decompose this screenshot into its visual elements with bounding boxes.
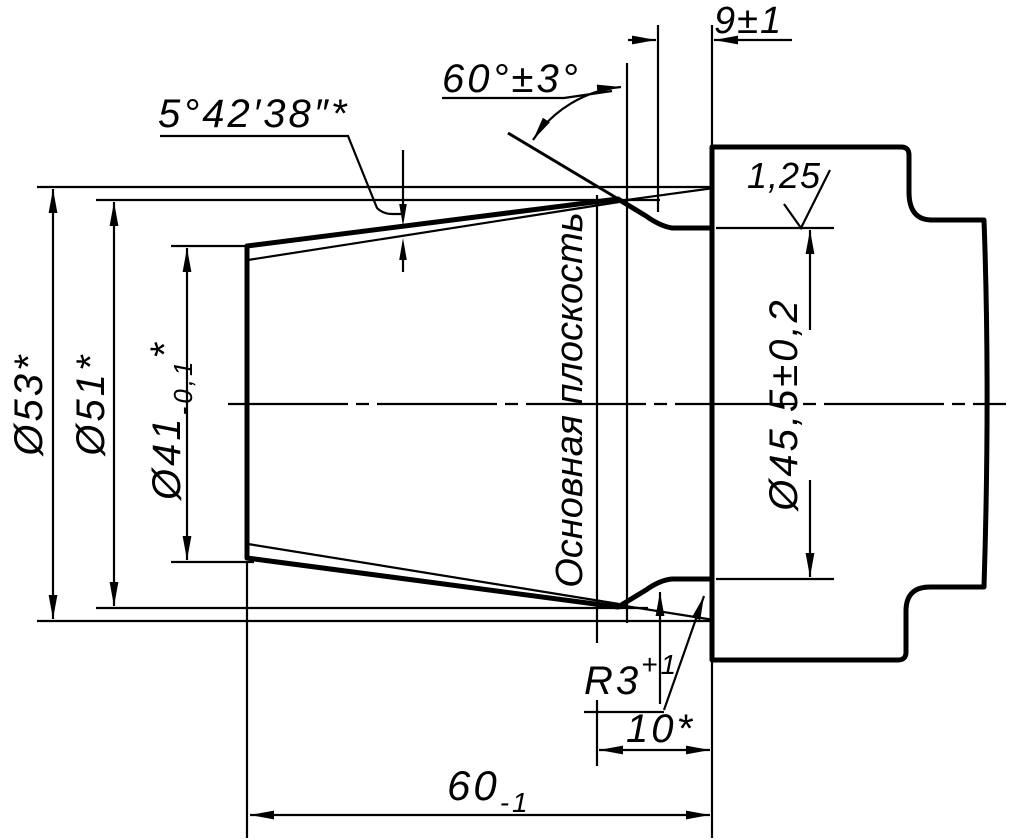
label-dia-53: Ø53* bbox=[7, 352, 51, 457]
label-dia-45-5: Ø45,5±0,2 bbox=[762, 297, 806, 513]
label-taper-half-angle: 5°42′38″* bbox=[158, 92, 349, 136]
label-dia-41-value: Ø41 bbox=[145, 415, 189, 502]
angle-arc-arrow-bottom bbox=[533, 118, 550, 140]
label-basic-plane-distance: 10* bbox=[626, 707, 695, 751]
label-cone-length-value: 60 bbox=[447, 762, 500, 809]
label-basic-plane: Основная плоскость bbox=[549, 212, 591, 588]
chamfer-fillet-bottom bbox=[618, 579, 712, 607]
label-surface-roughness: 1,25 bbox=[747, 155, 821, 196]
label-dia-51: Ø51* bbox=[69, 352, 113, 457]
leader-taper-angle bbox=[160, 136, 402, 214]
label-chamfer-angle: 60°±3° bbox=[442, 57, 581, 101]
label-fillet-radius-tolerance: +1 bbox=[641, 649, 679, 680]
label-dia-41-note: * bbox=[143, 340, 187, 359]
taper-arrow-up bbox=[399, 238, 407, 260]
chamfer-extension-line bbox=[508, 133, 620, 200]
label-flange-width: 9±1 bbox=[714, 0, 783, 42]
label-dia-41-tolerance: -0,1 bbox=[168, 359, 198, 416]
label-fillet-radius-value: R3 bbox=[584, 659, 641, 703]
technical-drawing-canvas: 9±1 60°±3° 5°42′38″* 1,25 Ø53* Ø51* Ø41-… bbox=[0, 0, 1014, 840]
label-fillet-radius: R3+1 bbox=[584, 649, 679, 703]
label-dia-41: Ø41-0,1* bbox=[143, 340, 198, 502]
chamfer-fillet-top bbox=[618, 199, 712, 228]
label-cone-length-tolerance: -1 bbox=[500, 787, 531, 818]
cone-theoretical-top bbox=[619, 188, 714, 201]
technical-drawing-page: 9±1 60°±3° 5°42′38″* 1,25 Ø53* Ø51* Ø41-… bbox=[0, 0, 1014, 840]
label-cone-length: 60-1 bbox=[447, 762, 531, 818]
labels: 9±1 60°±3° 5°42′38″* 1,25 Ø53* Ø51* Ø41-… bbox=[7, 0, 821, 818]
